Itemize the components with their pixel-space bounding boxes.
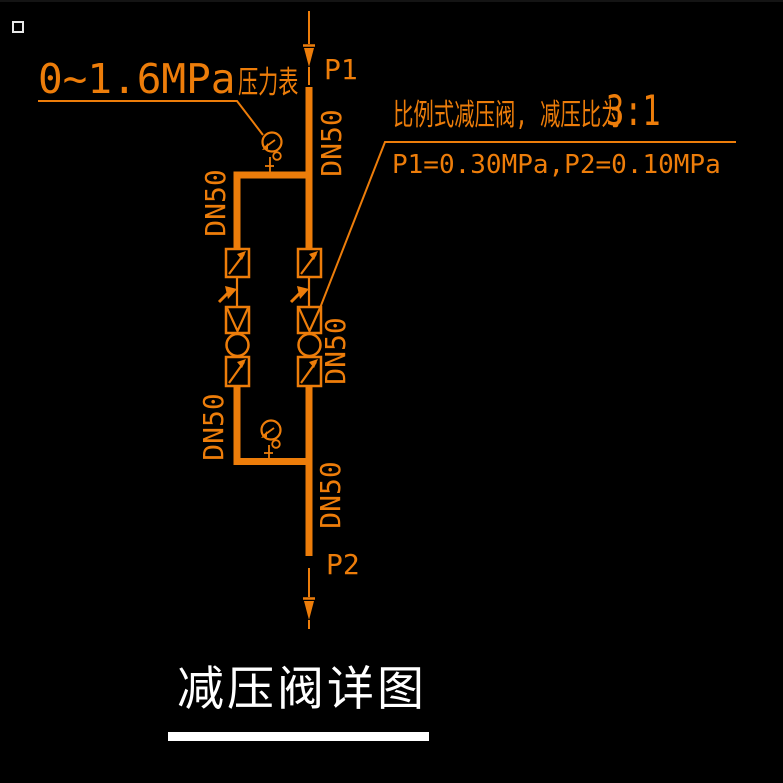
drawing-title[interactable]: 减压阀详图 (177, 666, 427, 713)
window-edge (0, 0, 783, 2)
check-head (297, 286, 309, 299)
pick-box-marker (13, 22, 23, 32)
valve-arrow-head (237, 359, 246, 368)
check-tail (291, 293, 300, 302)
leader-path (38, 101, 263, 135)
inlet-pressure-label[interactable]: P1 (324, 56, 358, 84)
title-underline (168, 732, 429, 741)
reducer-vee (299, 308, 320, 331)
pipe-size-label-left-lower[interactable]: DN50 (200, 393, 228, 460)
arrow-head (304, 601, 314, 620)
check-tail (219, 293, 228, 302)
pipe-size-label-outlet[interactable]: DN50 (317, 461, 345, 528)
pipe-size-label-inlet[interactable]: DN50 (318, 109, 346, 176)
pressure-values-label[interactable]: P1=0.30MPa,P2=0.10MPa (392, 152, 721, 178)
valve-ratio-label[interactable]: 3:1 (606, 90, 661, 132)
reducer-bowl (227, 334, 249, 356)
check-mark-icon[interactable] (291, 286, 309, 302)
gauge-stem (265, 157, 274, 173)
stop-valve-icon[interactable] (298, 357, 321, 386)
stop-valve-icon[interactable] (298, 249, 321, 277)
pipe-thin-runs (237, 277, 309, 307)
stop-valve-icon[interactable] (226, 249, 249, 277)
arrow-head (304, 48, 314, 67)
check-head (225, 286, 237, 299)
pressure-gauge-icon[interactable] (261, 421, 281, 462)
valve-note-label[interactable]: 比例式减压阀, 减压比为 (393, 101, 622, 131)
pipe-size-label-left-upper[interactable]: DN50 (202, 169, 230, 236)
gauge-loop (272, 440, 280, 448)
reducer-vee (227, 308, 248, 331)
gauge-device-label[interactable]: 压力表 (238, 68, 298, 99)
outlet-flow-arrow-icon[interactable] (303, 568, 315, 629)
reducer-bowl (299, 334, 321, 356)
check-mark-icon[interactable] (219, 286, 237, 302)
outlet-pressure-label[interactable]: P2 (326, 551, 360, 579)
valve-arrow-head (309, 251, 318, 260)
valve-arrow-head (237, 251, 246, 260)
pressure-reducing-valve-icon[interactable] (298, 307, 321, 356)
leader-line-gauge[interactable] (38, 101, 263, 135)
pressure-gauge-icon[interactable] (262, 133, 282, 174)
cad-drawing-canvas[interactable]: 0~1.6MPa 压力表 比例式减压阀, 减压比为 3:1 P1=0.30MPa… (0, 0, 783, 783)
stop-valve-icon[interactable] (226, 357, 249, 386)
gauge-range-label[interactable]: 0~1.6MPa (38, 59, 235, 100)
pipe-size-label-right-branch[interactable]: DN50 (322, 317, 350, 384)
gauge-loop (273, 152, 281, 160)
pressure-reducing-valve-icon[interactable] (226, 307, 249, 356)
valve-arrow-head (309, 359, 318, 368)
